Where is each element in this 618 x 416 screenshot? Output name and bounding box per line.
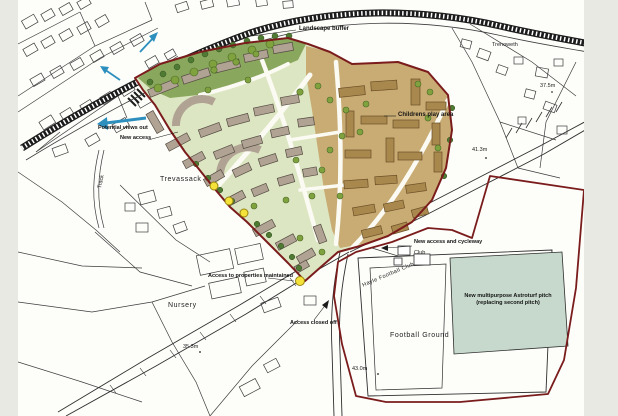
label-spot-height-413: 41.3m [472,148,487,154]
screenshot-canvas: Landscape buffer Trenoweth 37.5m Childre… [0,0,618,416]
label-football-ground: Football Ground [390,332,449,339]
label-spot-height-375: 37.5m [540,84,555,90]
label-childrens-play-area: Childrens play area [398,112,453,118]
label-access-to-properties: Access to properties maintained [208,274,293,280]
label-landscape-buffer: Landscape buffer [299,26,349,32]
label-trevassack: Trevassack [160,176,202,183]
label-trenoweth: Trenoweth [492,43,518,49]
label-club: Club [414,251,425,257]
label-spot-height-353: 35.3m [183,345,198,351]
label-nursery: Nursery [168,302,197,309]
label-spot-height-430: 43.0m [352,367,367,373]
label-astroturf-line1: New multipurpose Astroturf pitch [464,294,551,300]
site-plan-graphic [0,0,618,416]
label-new-access-cycleway: New access and cycleway [414,240,482,246]
label-astroturf-line2: (replacing second pitch) [476,301,540,307]
masterplan-map: Landscape buffer Trenoweth 37.5m Childre… [0,0,618,416]
label-access-closed-off: Access closed off [290,321,337,327]
label-potential-views-out: Potential views out [98,126,148,132]
label-new-access: New access [120,136,151,142]
